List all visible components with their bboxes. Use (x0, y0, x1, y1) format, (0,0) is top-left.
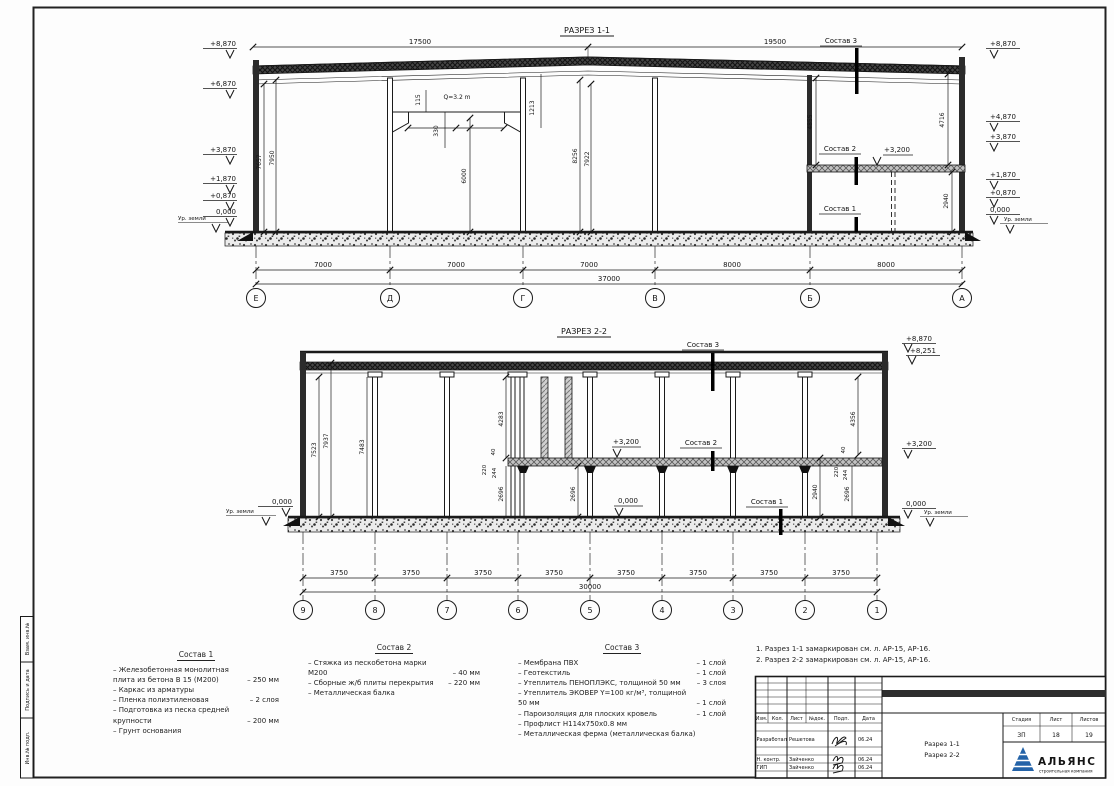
axis-label: Б (807, 294, 813, 303)
tb-sheet-value: 18 (1052, 732, 1060, 739)
dim-6000: 6000 (461, 168, 468, 183)
dim-4855: 4855 (807, 114, 814, 129)
tb-date-1: 06.24 (858, 757, 872, 763)
crane-capacity-label: Q=3.2 m (443, 94, 470, 101)
spec-item: – Геотекстиль– 1 слой (518, 668, 726, 678)
dim-2696b: 2696 (570, 486, 577, 501)
tb-col-ndok: №док. (809, 716, 826, 722)
section-1-1: РАЗРЕЗ 1-1 Q=3.2 m 17500 19500 7657 (178, 26, 1048, 308)
axis-label: 5 (587, 606, 592, 615)
elev-mark: +3,200 (906, 440, 932, 448)
level-3200-mid-s2: +3,200 (613, 438, 639, 446)
tb-sheet-header: Лист (1050, 717, 1063, 723)
s1-bottom-dims: 7000 7000 7000 8000 8000 37000 Е Д Г В Б… (247, 246, 972, 308)
dim-7523: 7523 (311, 442, 318, 457)
flag-sostav1-s2: Состав 1 (751, 498, 783, 506)
elev-mark: +6,870 (210, 80, 236, 88)
spec-item: – Профлист Н114х750х0.8 мм (518, 719, 726, 729)
title-block: Изм. Кол. Лист №док. Подп. Дата Разработ… (755, 676, 1106, 778)
elev-mark: +1,870 (210, 175, 236, 183)
wall-right-s2 (882, 352, 888, 532)
spec-item: – Металлическая ферма (металлическая бал… (518, 729, 726, 739)
drawing-notes: 1. Разрез 1-1 замаркирован см. л. АР-15,… (756, 644, 986, 666)
elev-mark: 0,000 (990, 206, 1010, 214)
axis-label: 7 (444, 606, 449, 615)
flag-sostav2-s2: Состав 2 (685, 439, 717, 447)
tb-col-izm: Изм. (756, 716, 768, 722)
span-dim: 7000 (314, 261, 332, 269)
frame-stamp-vzam: Взам. инв.№ (25, 622, 31, 655)
spec-item: – Металлическая балка (308, 688, 480, 698)
dim-40b: 40 (841, 446, 847, 453)
spec-sostav-1: Состав 1 – Железобетонная монолитная пли… (113, 650, 279, 736)
ground-strip-s1 (225, 233, 973, 246)
elev-mark: 0,000 (906, 500, 926, 508)
spec-item: – Пароизоляция для плоских кровель– 1 сл… (518, 709, 726, 719)
dim-4283: 4283 (498, 411, 505, 426)
dim-4356: 4356 (850, 411, 857, 426)
axis-label: В (652, 294, 658, 303)
s1-elev-right: +8,870 +4,870 +3,870 +1,870 +0,870 0,000… (986, 40, 1048, 233)
span-dim: 7000 (580, 261, 598, 269)
axis-label: 8 (372, 606, 377, 615)
elev-mark: 0,000 (216, 208, 236, 216)
elev-mark: +3,870 (210, 146, 236, 154)
wall-axis-e (253, 60, 259, 232)
dim-7950: 7950 (269, 150, 276, 165)
spec-title: Состав 3 (518, 643, 726, 654)
spec-item: – Сборные ж/б плиты перекрытия– 220 мм (308, 678, 480, 688)
roof-band-s2 (300, 362, 888, 370)
dim-7483: 7483 (359, 439, 366, 454)
axis-label: А (959, 294, 965, 303)
axis-label: 4 (659, 606, 664, 615)
span-dim: 3750 (330, 569, 348, 577)
axis-label: 1 (874, 606, 879, 615)
spec-item: – Железобетонная монолитная плита из бет… (113, 665, 279, 685)
flag-sostav3-s1: Состав 3 (825, 37, 857, 45)
elev-mark: +8,870 (990, 40, 1016, 48)
axis-label: Г (521, 294, 526, 303)
level-0-mid-s2: 0,000 (618, 497, 638, 505)
span-dim: 3750 (689, 569, 707, 577)
span-dim: 3750 (402, 569, 420, 577)
s2-bottom-dims: 3750 3750 3750 3750 3750 3750 3750 3750 … (294, 532, 887, 620)
column-axis-v (653, 78, 658, 232)
tb-role-2: ГИП (757, 765, 768, 771)
span-dim: 3750 (832, 569, 850, 577)
dim-330: 330 (433, 125, 440, 137)
slab-brackets (517, 466, 811, 473)
spec-item: – Утеплитель ЭКОВЕР Y=100 кг/м³, толщино… (518, 688, 726, 708)
ground-strip-s2 (288, 518, 900, 532)
tb-name-1: Зайченко (789, 756, 814, 763)
dim-220a: 220 (482, 464, 488, 475)
flag-sostav1-s1: Состав 1 (824, 205, 856, 213)
note-line: 2. Разрез 2-2 замаркирован см. л. АР-15,… (756, 655, 986, 666)
dim-2940-s2: 2940 (812, 484, 819, 499)
s1-axis-bubbles: Е Д Г В Б А (247, 289, 972, 308)
ground-label-left-s2: Ур. земли (226, 509, 254, 515)
spec-item: – Мембрана ПВХ– 1 слой (518, 658, 726, 668)
span-dim: 8000 (877, 261, 895, 269)
span-dim: 3750 (474, 569, 492, 577)
wall-left-s2 (300, 352, 306, 532)
total-dim-s2: 30000 (579, 583, 601, 591)
column-axis-d (388, 78, 393, 232)
axis-label: Е (253, 294, 258, 303)
section-2-2-title: РАЗРЕЗ 2-2 (561, 327, 607, 336)
s2-elev-left: 0,000 Ур. земли (226, 498, 293, 525)
spec-item: – Грунт основания (113, 726, 279, 736)
wall-axis-a (959, 57, 965, 232)
elev-mark: +8,870 (906, 335, 932, 343)
tb-stage-value: ЗП (1017, 732, 1025, 739)
axis-label: Д (387, 294, 393, 303)
elev-mark: +8,251 (910, 347, 936, 355)
s2-axis-bubbles: 9 8 7 6 5 4 3 2 1 (294, 601, 887, 620)
tb-sheets-header: Листов (1080, 717, 1099, 723)
flag-sostav3-s2: Состав 3 (687, 341, 719, 349)
section-1-1-title: РАЗРЕЗ 1-1 (564, 26, 610, 35)
tb-role-0: Разработал (757, 737, 787, 743)
tb-col-list: Лист (790, 716, 803, 722)
elev-mark: +0,870 (990, 189, 1016, 197)
column-axis-g (521, 78, 526, 232)
hatched-post (565, 377, 572, 458)
dim-7922: 7922 (584, 151, 591, 166)
span-dim: 8000 (723, 261, 741, 269)
ground-label-right-s2: Ур. земли (924, 510, 952, 516)
axis-label: 3 (730, 606, 735, 615)
span-dim: 3750 (545, 569, 563, 577)
span-dim: 3750 (760, 569, 778, 577)
spec-title: Состав 1 (113, 650, 279, 661)
s2-elev-right: +8,870 +8,251 +3,200 0,000 Ур. земли (902, 335, 968, 526)
axis-label: 6 (515, 606, 520, 615)
ground-label-left-s1: Ур. земли (178, 216, 206, 222)
dim-220b: 220 (834, 466, 840, 477)
mezzanine-slab-s1 (807, 165, 965, 172)
dim-2940: 2940 (943, 193, 950, 208)
spec-item: – Пленка полиэтиленовая– 2 слоя (113, 695, 279, 705)
dim-8256: 8256 (572, 148, 579, 163)
drawing-sheet: Взам. инв.№ Подпись и дата Инв.№ подл. Р… (0, 0, 1114, 786)
s2-vertical-dims: 7523 7937 7483 4283 40 220 244 2696 2696… (311, 360, 861, 520)
wall-axis-b (807, 75, 812, 232)
dim-7657: 7657 (256, 154, 263, 169)
level-3200-s1: +3,200 (884, 146, 910, 154)
spec-sostav-2: Состав 2 – Стяжка из пескобетона марки М… (308, 643, 480, 698)
spec-item: – Стяжка из пескобетона марки М200– 40 м… (308, 658, 480, 678)
elev-mark: +0,870 (210, 192, 236, 200)
frame-stamp-inv: Инв.№ подл. (25, 731, 31, 764)
tb-doc-title-1: Разрез 1-1 (924, 740, 960, 748)
tb-date-0: 06.24 (858, 737, 872, 743)
s1-elev-left: +8,870 +6,870 +3,870 +1,870 +0,870 0,000… (178, 40, 237, 232)
span-dim: 3750 (617, 569, 635, 577)
spec-sostav-3: Состав 3 – Мембрана ПВХ– 1 слой – Геотек… (518, 643, 726, 739)
elev-mark: +3,870 (990, 133, 1016, 141)
spec-item: – Каркас из арматуры (113, 685, 279, 695)
note-line: 1. Разрез 1-1 замаркирован см. л. АР-15,… (756, 644, 986, 655)
elev-mark: 0,000 (272, 498, 292, 506)
total-dim-s1: 37000 (598, 275, 620, 283)
elev-mark: +8,870 (210, 40, 236, 48)
dim-4716: 4716 (939, 112, 946, 127)
span-dim: 7000 (447, 261, 465, 269)
tb-name-0: Решетова (789, 737, 815, 743)
elev-mark: +4,870 (990, 113, 1016, 121)
tb-stage-header: Стадия (1012, 717, 1031, 723)
tb-sheets-value: 19 (1085, 732, 1093, 739)
logo-company-name: АЛЬЯНС (1038, 756, 1096, 768)
dim-19500: 19500 (764, 38, 786, 46)
dim-40a: 40 (491, 448, 497, 455)
section-2-2: РАЗРЕЗ 2-2 7523 7937 7483 4283 40 2 (226, 327, 968, 620)
spec-item: – Подготовка из песка средней крупности–… (113, 705, 279, 725)
elev-mark: +1,870 (990, 171, 1016, 179)
tb-role-1: Н. контр. (757, 757, 781, 763)
dim-2696a: 2696 (498, 486, 505, 501)
dim-244b: 244 (843, 469, 849, 480)
axis-label: 2 (802, 606, 807, 615)
dim-1213: 1213 (529, 100, 536, 115)
crane-runway: Q=3.2 m (392, 94, 521, 132)
dim-2696c: 2696 (844, 486, 851, 501)
mezzanine-slab-s2 (508, 458, 882, 466)
ground-label-right-s1: Ур. земли (1004, 217, 1032, 223)
dim-115: 115 (415, 94, 422, 106)
hatched-post (541, 377, 548, 458)
tb-date-2: 06.24 (858, 765, 872, 771)
s2-columns (368, 372, 812, 518)
tb-name-2: Зайченко (789, 764, 814, 771)
dim-244a: 244 (492, 467, 498, 478)
frame-stamp-podpis: Подпись и дата (25, 669, 31, 710)
logo-company-subtitle: строительная компания (1039, 769, 1093, 774)
spec-item: – Утеплитель ПЕНОПЛЭКС, толщиной 50 мм– … (518, 678, 726, 688)
spec-title: Состав 2 (308, 643, 480, 654)
tb-col-podp: Подп. (834, 716, 850, 722)
axis-label: 9 (300, 606, 305, 615)
flag-sostav2-s1: Состав 2 (824, 145, 856, 153)
tb-col-data: Дата (862, 716, 875, 722)
tb-doc-title-2: Разрез 2-2 (924, 751, 960, 759)
dim-7937: 7937 (323, 433, 330, 448)
tb-col-kol: Кол. (772, 716, 784, 722)
dim-17500: 17500 (409, 38, 431, 46)
